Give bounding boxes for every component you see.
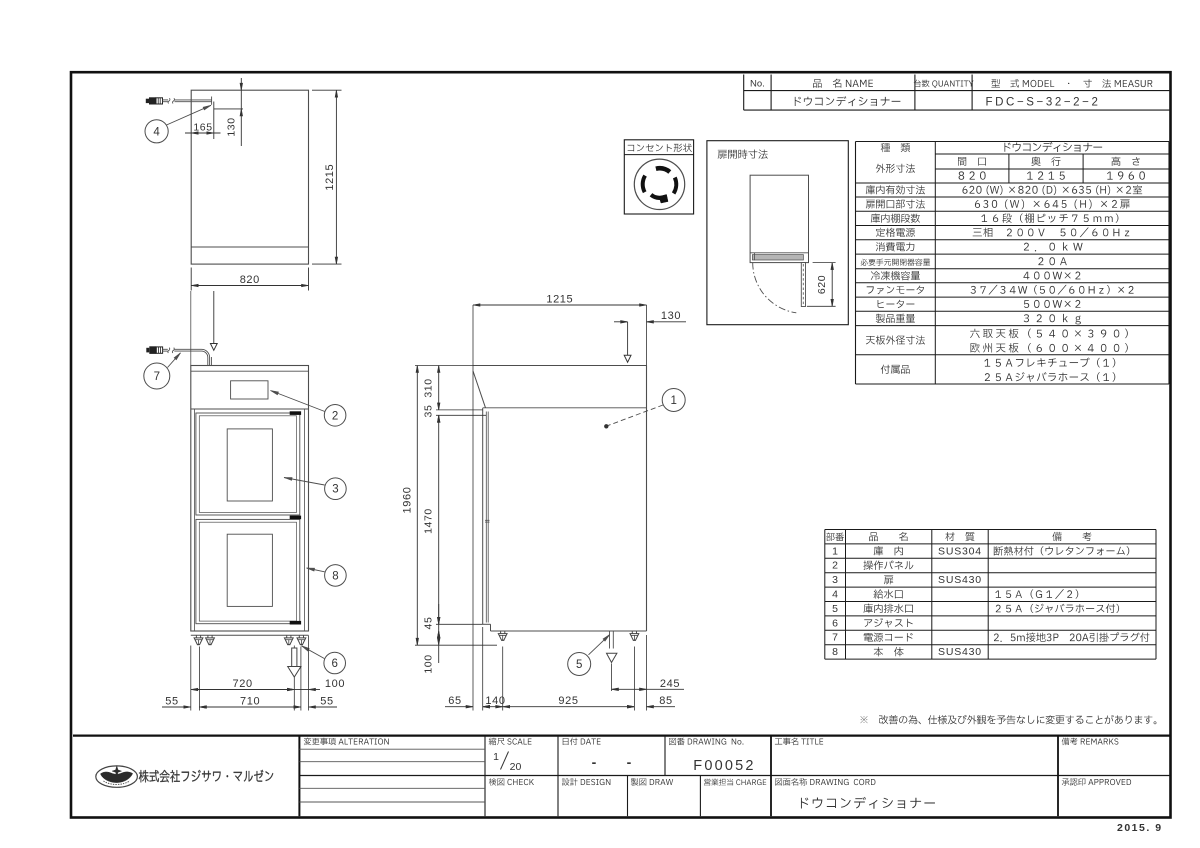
svg-text:55: 55 (165, 696, 178, 708)
svg-text:100: 100 (423, 654, 435, 673)
svg-text:3: 3 (832, 574, 838, 586)
svg-text:140: 140 (485, 695, 505, 707)
svg-text:1: 1 (493, 751, 499, 763)
svg-text:130: 130 (226, 117, 238, 136)
svg-text:1: 1 (670, 395, 676, 407)
svg-text:820: 820 (240, 274, 260, 286)
svg-text:165: 165 (193, 122, 212, 134)
svg-text:85: 85 (659, 695, 672, 707)
svg-text:7: 7 (832, 632, 838, 644)
svg-text:2: 2 (832, 560, 838, 572)
svg-text:65: 65 (448, 695, 461, 707)
svg-text:8: 8 (832, 646, 838, 658)
svg-text:45: 45 (423, 617, 435, 630)
svg-text:7: 7 (154, 371, 160, 383)
svg-text:925: 925 (558, 695, 578, 707)
svg-text:3: 3 (332, 484, 338, 496)
svg-text:55: 55 (320, 696, 333, 708)
svg-text:245: 245 (660, 678, 680, 690)
svg-text:1215: 1215 (546, 294, 573, 306)
svg-text:620: 620 (816, 275, 828, 294)
svg-text:SUS430: SUS430 (938, 574, 982, 586)
svg-text:1470: 1470 (423, 508, 435, 534)
svg-text:8: 8 (332, 570, 338, 582)
svg-text:4: 4 (153, 126, 160, 138)
svg-text:310: 310 (423, 378, 435, 397)
svg-text:130: 130 (661, 310, 681, 322)
svg-text:710: 710 (240, 696, 260, 708)
svg-text:SUS430: SUS430 (938, 646, 982, 658)
svg-text:F00052: F00052 (693, 758, 755, 774)
svg-text:6: 6 (331, 658, 337, 670)
svg-text:1215: 1215 (324, 164, 336, 191)
svg-text:FDC−S−32−2−2: FDC−S−32−2−2 (986, 97, 1101, 109)
svg-text:100: 100 (325, 678, 345, 690)
svg-text:5: 5 (576, 659, 582, 671)
svg-text:20: 20 (510, 761, 522, 773)
svg-text:6: 6 (832, 617, 838, 629)
svg-text:1: 1 (832, 545, 838, 557)
svg-text:No.: No. (750, 79, 765, 90)
svg-text:2: 2 (332, 410, 338, 422)
svg-text:-: - (627, 754, 632, 770)
svg-text:2015. 9: 2015. 9 (1117, 822, 1163, 834)
svg-text:1960: 1960 (402, 487, 414, 514)
svg-text:720: 720 (233, 678, 253, 690)
svg-text:4: 4 (832, 589, 838, 601)
svg-text:SUS304: SUS304 (938, 545, 982, 557)
svg-text:-: - (592, 754, 597, 770)
svg-text:35: 35 (423, 405, 435, 418)
svg-text:5: 5 (832, 603, 838, 615)
